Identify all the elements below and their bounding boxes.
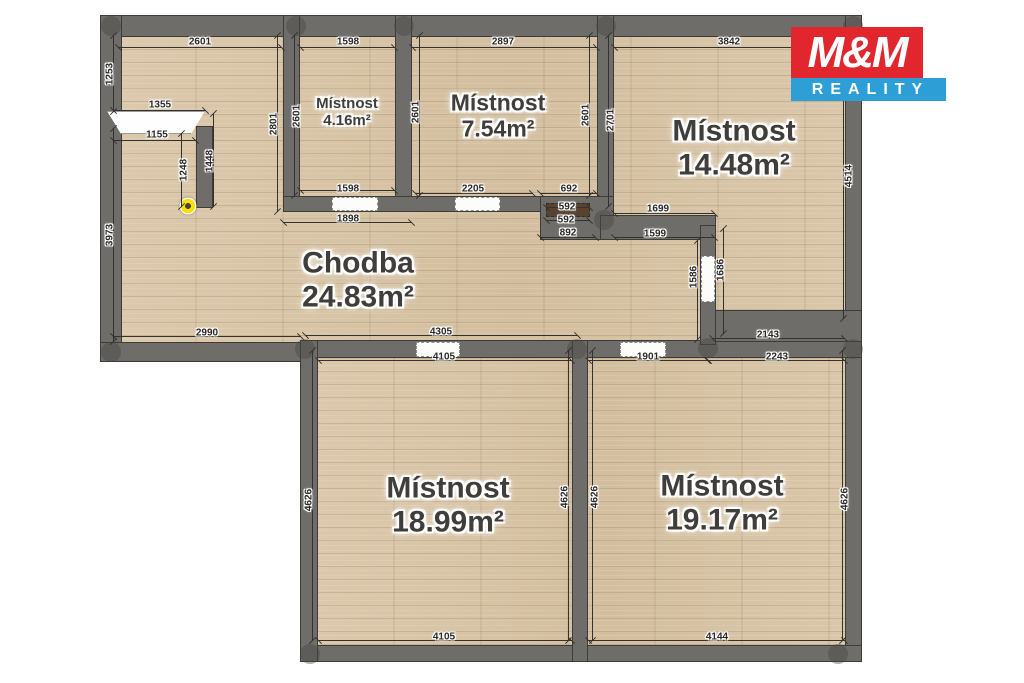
dim-label-closet-left: 1248 bbox=[179, 159, 190, 181]
dim-label-r1448-bottom-right: 2143 bbox=[757, 330, 779, 341]
dim-label-entry-top: 2601 bbox=[189, 37, 211, 48]
dim-label-r416-bottom: 1598 bbox=[337, 184, 359, 195]
dim-label-entry-left-upper: 1253 bbox=[105, 63, 116, 85]
dim-label-passage-upper: 592 bbox=[559, 202, 576, 213]
room-label-r1917: Místnost 19.17m² bbox=[660, 469, 783, 536]
wall-joint-dot bbox=[101, 342, 121, 362]
floor-plan: 2601 1598 2897 3842 1355 1155 1598 1898 … bbox=[0, 0, 1024, 683]
wall-joint-dot bbox=[394, 16, 414, 36]
room-name: Místnost bbox=[660, 469, 783, 503]
dim-label-closet-top: 1355 bbox=[149, 100, 171, 111]
room-area: 7.54m² bbox=[451, 116, 546, 142]
dim-label-r1899-top-outer: 4305 bbox=[430, 327, 452, 338]
dim-label-hall-top-right: 1599 bbox=[644, 229, 666, 240]
room-name: Místnost bbox=[451, 90, 546, 116]
room-name: Místnost bbox=[316, 96, 378, 113]
room-area: 24.83m² bbox=[302, 280, 414, 314]
dim-label-r416-left: 2601 bbox=[292, 105, 303, 127]
wall-joint-dot bbox=[843, 339, 863, 359]
wall-hall-bottom bbox=[100, 342, 318, 362]
dim-label-r416-bottom-outer: 1898 bbox=[337, 214, 359, 225]
dim-label-r1899-right: 4626 bbox=[560, 486, 571, 508]
dim-label-entry-left-lower: 3973 bbox=[105, 224, 116, 246]
wall-joint-dot bbox=[596, 16, 616, 36]
dim-label-passage-lower: 592 bbox=[558, 215, 575, 226]
door-r754 bbox=[455, 197, 500, 211]
dim-label-r1917-left: 4626 bbox=[590, 486, 601, 508]
logo-mm-text: M&M bbox=[791, 27, 923, 78]
wall-joint-dot bbox=[594, 210, 614, 230]
dim-label-r1917-right: 4626 bbox=[840, 488, 851, 510]
dim-label-entry-right: 2801 bbox=[269, 113, 280, 135]
dim-label-r1899-left: 4626 bbox=[304, 489, 315, 511]
door-r1448 bbox=[701, 256, 715, 302]
room-label-r1899: Místnost 18.99m² bbox=[386, 471, 509, 538]
dim-label-r1448-right: 4514 bbox=[844, 165, 855, 187]
dim-label-r1899-bottom: 4105 bbox=[433, 632, 455, 643]
dim-label-r1899-top: 4105 bbox=[433, 352, 455, 363]
room-label-r416: Místnost 4.16m² bbox=[316, 96, 378, 130]
room-label-r1448: Místnost 14.48m² bbox=[672, 114, 795, 181]
dim-label-closet-bottom: 1155 bbox=[146, 130, 168, 141]
dim-label-r754-left: 2601 bbox=[411, 101, 422, 123]
dim-label-r1448-bottom-left: 1699 bbox=[647, 204, 669, 215]
wall-lower-rooms-divider bbox=[572, 340, 588, 662]
dim-label-r754-bottom: 2205 bbox=[462, 184, 484, 195]
dim-label-r416-top: 1598 bbox=[337, 37, 359, 48]
logo-reality-text: REALITY bbox=[791, 78, 946, 101]
room-name: Chodba bbox=[302, 246, 414, 280]
room-label-chodba: Chodba 24.83m² bbox=[302, 246, 414, 313]
room-area: 18.99m² bbox=[386, 505, 509, 539]
room-name: Místnost bbox=[672, 114, 795, 148]
dim-label-r754-bottom-right: 692 bbox=[561, 184, 578, 195]
dimension-line bbox=[697, 240, 698, 340]
dim-label-r754-right: 2601 bbox=[581, 104, 592, 126]
dim-label-r1448-top: 3842 bbox=[718, 37, 740, 48]
dim-label-hall-top-mid: 892 bbox=[560, 228, 577, 239]
dim-label-closet-right: 1448 bbox=[205, 150, 216, 172]
dim-label-r1448-door-right: 1686 bbox=[716, 259, 727, 281]
room-name: Místnost bbox=[386, 471, 509, 505]
dim-label-r1917-bottom: 4144 bbox=[706, 632, 728, 643]
door-r416 bbox=[332, 197, 378, 211]
wall-joint-dot bbox=[828, 644, 848, 664]
room-label-r754: Místnost 7.54m² bbox=[451, 90, 546, 142]
wall-top bbox=[100, 15, 862, 37]
room-area: 14.48m² bbox=[672, 148, 795, 182]
dim-label-r1917-top-left: 1901 bbox=[637, 352, 659, 363]
dim-label-hall-bottom-left: 2990 bbox=[196, 328, 218, 339]
dim-label-r1448-left: 2701 bbox=[606, 109, 617, 131]
dim-label-r1917-top-right: 2243 bbox=[766, 352, 788, 363]
dim-label-r1448-door-left: 1586 bbox=[689, 266, 700, 288]
room-area: 4.16m² bbox=[316, 113, 378, 130]
wall-joint-dot bbox=[101, 16, 121, 36]
room-area: 19.17m² bbox=[660, 503, 783, 537]
dim-label-r754-top: 2897 bbox=[492, 37, 514, 48]
wall-joint-dot bbox=[300, 644, 320, 664]
